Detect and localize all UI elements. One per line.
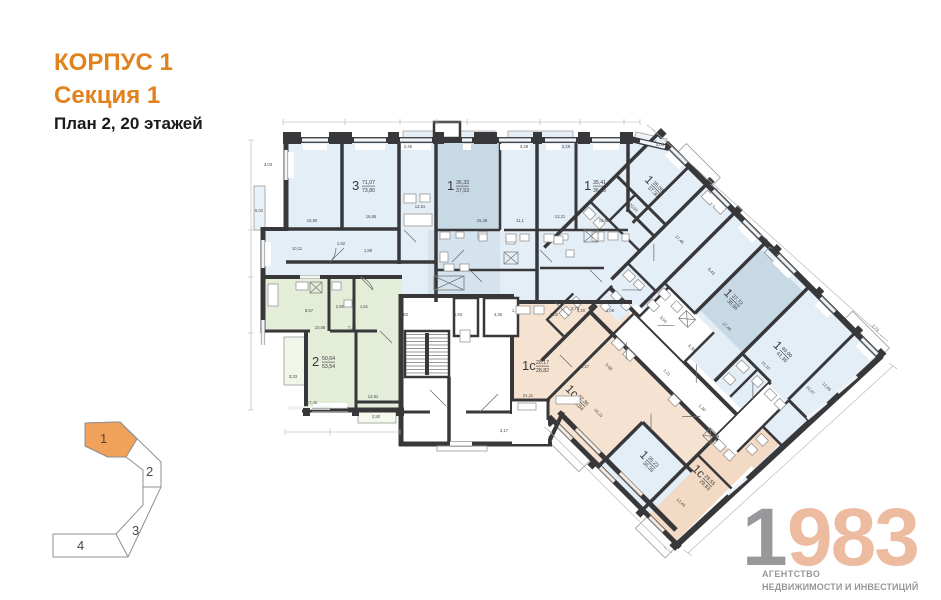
svg-text:3,79: 3,79	[571, 306, 580, 311]
svg-text:37,53: 37,53	[456, 188, 469, 194]
svg-text:7,12: 7,12	[348, 325, 357, 330]
svg-text:2,62: 2,62	[400, 312, 409, 317]
svg-text:3,03: 3,03	[264, 162, 273, 167]
svg-text:17,42: 17,42	[307, 400, 318, 405]
svg-text:16,80: 16,80	[307, 218, 318, 223]
svg-text:5,93: 5,93	[454, 312, 463, 317]
svg-text:71,07: 71,07	[362, 180, 375, 186]
svg-text:73,80: 73,80	[362, 188, 375, 194]
svg-text:2,04: 2,04	[656, 142, 665, 147]
svg-text:15,90: 15,90	[599, 218, 610, 223]
svg-text:1с: 1с	[522, 358, 536, 373]
svg-text:4,02: 4,02	[550, 312, 559, 317]
svg-text:12,91: 12,91	[368, 394, 379, 399]
svg-text:1,08: 1,08	[606, 308, 615, 313]
svg-text:2,29: 2,29	[562, 144, 571, 149]
svg-text:5,02: 5,02	[255, 208, 264, 213]
svg-text:3: 3	[352, 178, 359, 193]
svg-text:3,27: 3,27	[581, 364, 590, 369]
svg-text:НЕДВИЖИМОСТИ И ИНВЕСТИЦИЙ: НЕДВИЖИМОСТИ И ИНВЕСТИЦИЙ	[762, 581, 918, 592]
svg-text:4: 4	[77, 538, 84, 553]
svg-text:2: 2	[312, 354, 319, 369]
svg-text:15,48: 15,48	[477, 218, 488, 223]
svg-text:53,54: 53,54	[322, 364, 335, 370]
svg-text:Секция 1: Секция 1	[54, 82, 160, 109]
svg-text:1: 1	[100, 431, 107, 446]
svg-text:35,41: 35,41	[593, 180, 606, 186]
svg-text:1,92: 1,92	[337, 241, 346, 246]
svg-text:3,38: 3,38	[520, 144, 529, 149]
svg-text:2,45: 2,45	[404, 144, 413, 149]
svg-text:13,21: 13,21	[555, 214, 566, 219]
svg-text:План 2, 20 этажей: План 2, 20 этажей	[54, 114, 203, 133]
svg-text:1,89: 1,89	[364, 248, 373, 253]
svg-text:АГЕНТСТВО: АГЕНТСТВО	[762, 569, 820, 579]
svg-text:3: 3	[132, 523, 139, 538]
svg-text:11,1: 11,1	[516, 218, 525, 223]
svg-text:10,11: 10,11	[292, 246, 303, 251]
svg-text:1: 1	[447, 178, 454, 193]
svg-text:8,57: 8,57	[305, 308, 314, 313]
svg-text:1,61: 1,61	[360, 304, 369, 309]
svg-text:28,17: 28,17	[536, 360, 549, 366]
svg-text:3,33: 3,33	[289, 374, 298, 379]
svg-text:2,50: 2,50	[372, 414, 381, 419]
svg-text:50,64: 50,64	[322, 356, 335, 362]
svg-text:КОРПУС 1: КОРПУС 1	[54, 49, 173, 76]
svg-text:16,65: 16,65	[366, 214, 377, 219]
svg-text:3,17: 3,17	[500, 428, 509, 433]
svg-text:4,35: 4,35	[494, 312, 503, 317]
svg-text:1: 1	[584, 178, 591, 193]
svg-text:2,80: 2,80	[336, 304, 345, 309]
svg-text:21,11: 21,11	[523, 393, 534, 398]
svg-text:10,68: 10,68	[315, 325, 326, 330]
svg-text:36,55: 36,55	[593, 188, 606, 194]
svg-text:36,33: 36,33	[456, 180, 469, 186]
svg-text:2: 2	[146, 464, 153, 479]
svg-text:28,82: 28,82	[536, 368, 549, 374]
svg-text:12,51: 12,51	[415, 204, 426, 209]
